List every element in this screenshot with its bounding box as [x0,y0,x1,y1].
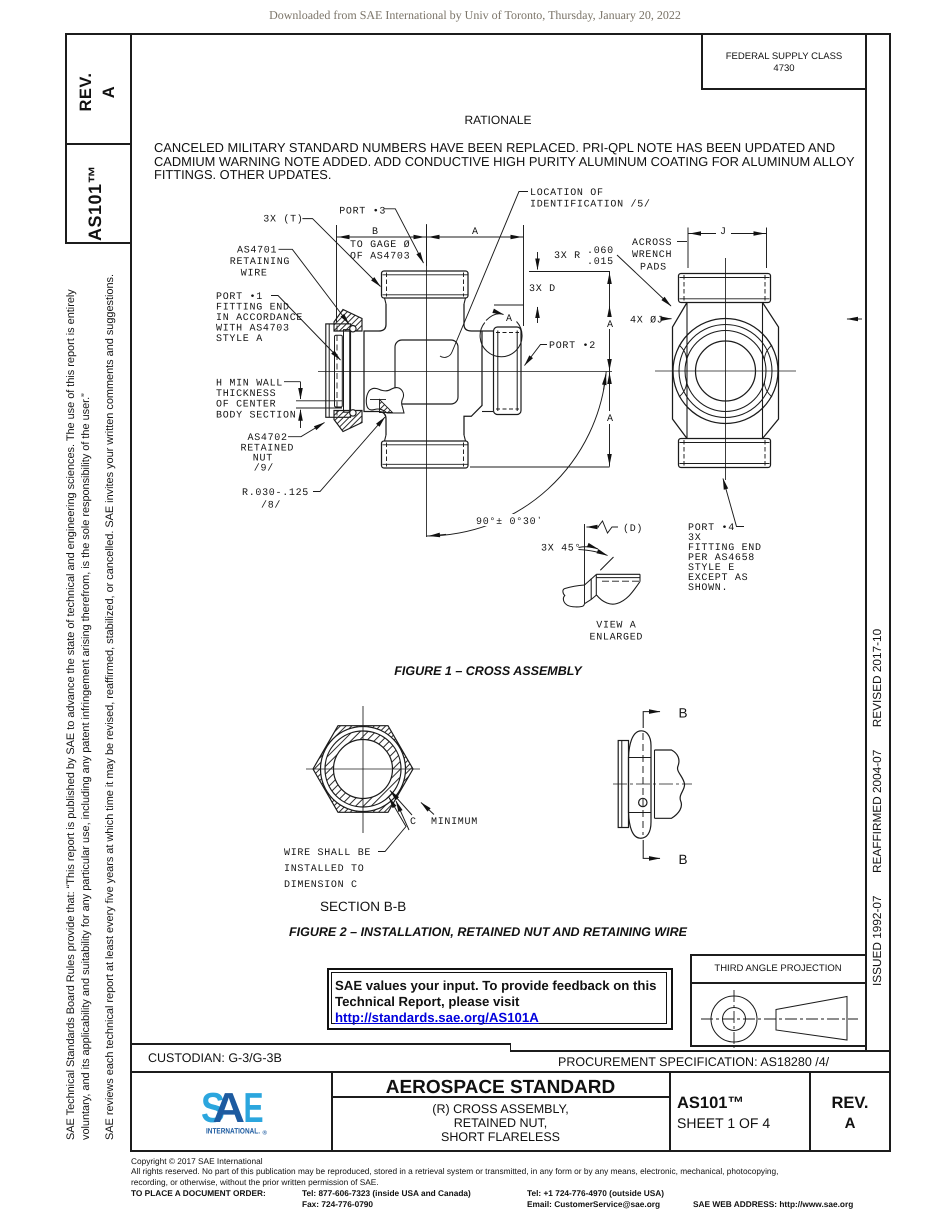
svg-text:WRENCH: WRENCH [632,250,672,261]
svg-text:C: C [410,817,417,828]
svg-text:DIMENSION C: DIMENSION C [284,880,358,891]
svg-text:3X (T): 3X (T) [263,214,303,226]
svg-text:A: A [607,320,614,331]
svg-text:IDENTIFICATION /5/: IDENTIFICATION /5/ [530,199,651,211]
svg-text:PADS: PADS [640,263,667,274]
svg-text:A: A [472,227,479,238]
svg-text:.015: .015 [587,257,614,268]
svg-text:SHOWN.: SHOWN. [688,583,728,594]
svg-text:PORT •2: PORT •2 [549,341,596,352]
svg-text:E: E [244,1084,264,1131]
svg-text:OF CENTER: OF CENTER [216,400,276,411]
svg-text:H MIN WALL: H MIN WALL [216,379,283,390]
svg-text:A: A [506,314,513,325]
svg-text:THICKNESS: THICKNESS [216,389,276,400]
svg-text:AS4701: AS4701 [237,245,277,256]
svg-text:3X D: 3X D [529,284,556,295]
svg-text:B: B [372,227,379,238]
svg-text:A: A [213,1084,246,1131]
svg-text:4X ØJ: 4X ØJ [630,316,664,327]
svg-text:A: A [607,414,614,425]
svg-text:STYLE A: STYLE A [216,334,263,345]
svg-text:WIRE: WIRE [241,269,268,280]
svg-text:ACROSS: ACROSS [632,238,672,249]
svg-text:®: ® [263,1130,268,1137]
svg-text:MINIMUM: MINIMUM [431,817,478,828]
svg-text:R.030-.125: R.030-.125 [242,488,309,499]
svg-text:WIRE SHALL BE: WIRE SHALL BE [284,848,371,859]
svg-text:WITH AS4703: WITH AS4703 [216,324,290,335]
svg-text:LOCATION OF: LOCATION OF [530,188,604,199]
svg-text:90°± 0°30ʼ: 90°± 0°30ʼ [476,516,543,528]
svg-text:INSTALLED TO: INSTALLED TO [284,864,364,875]
svg-text:OF AS4703: OF AS4703 [350,252,410,263]
svg-text:/8/: /8/ [261,500,281,512]
svg-text:TO GAGE Ø: TO GAGE Ø [350,240,410,251]
svg-text:B: B [679,852,688,867]
svg-text:BODY SECTION: BODY SECTION [216,411,296,422]
svg-text:IN ACCORDANCE: IN ACCORDANCE [216,313,303,324]
svg-text:RETAINING: RETAINING [230,257,290,268]
svg-text:.060: .060 [587,246,614,257]
svg-text:ENLARGED: ENLARGED [590,633,644,644]
svg-text:J: J [720,227,727,238]
svg-text:/9/: /9/ [254,462,274,474]
svg-text:VIEW A: VIEW A [596,621,636,632]
svg-text:FITTING END: FITTING END [216,303,290,314]
svg-text:B: B [679,706,688,721]
svg-text:PORT •3: PORT •3 [339,206,386,217]
svg-text:3X R: 3X R [554,251,581,262]
svg-text:PORT •1: PORT •1 [216,292,263,303]
svg-text:INTERNATIONAL.: INTERNATIONAL. [206,1127,260,1136]
svg-text:(D): (D) [623,523,643,535]
svg-text:3X 45°: 3X 45° [541,544,581,555]
